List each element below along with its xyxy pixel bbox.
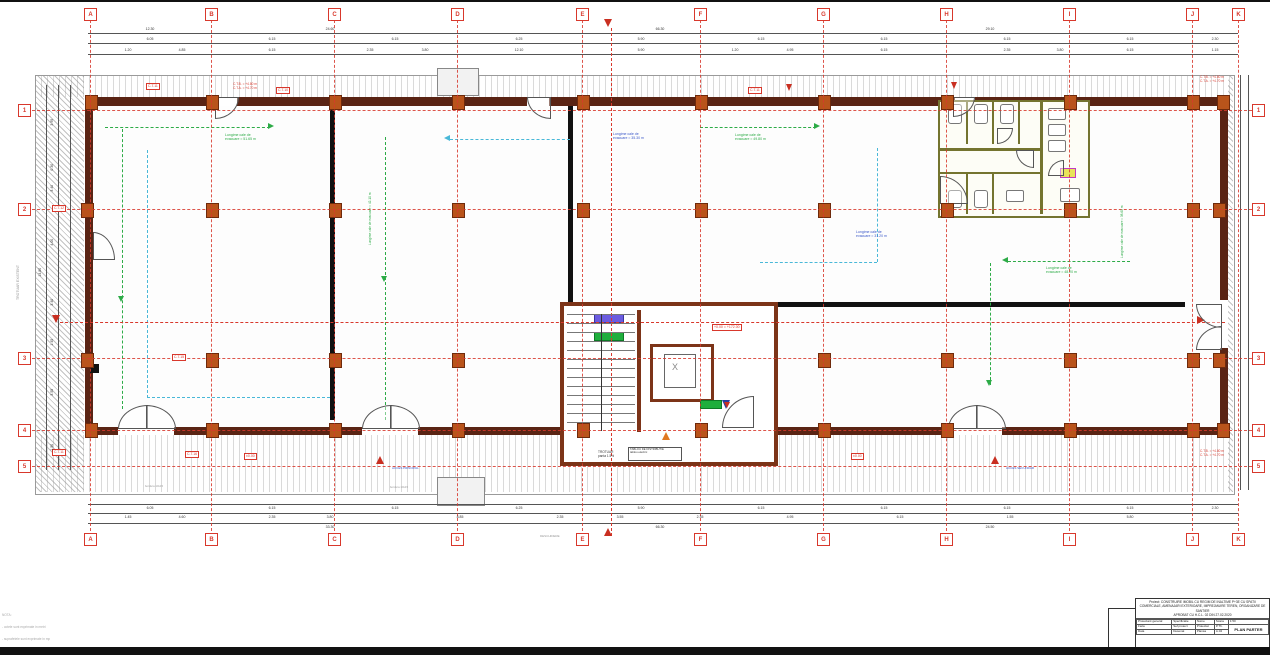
- grid-marker: 3: [18, 352, 31, 365]
- grid-marker: K: [1232, 8, 1245, 21]
- escape-route-label: Lungime cale de evacuare ≈ 31.20 m: [856, 230, 887, 239]
- dimension-text: 6.15: [1004, 506, 1011, 510]
- dimension-text: 66.30: [656, 27, 665, 31]
- data-label: Data: [1137, 630, 1172, 635]
- dimension-text: 4.00: [50, 239, 54, 246]
- grid-marker: 3: [1252, 352, 1265, 365]
- partition-black-e: [568, 106, 573, 306]
- red-box-label: ±0.00: [244, 453, 257, 460]
- column: [329, 95, 342, 110]
- dimension-text: 5.90: [638, 37, 645, 41]
- grid-marker: K: [1232, 533, 1245, 546]
- escape-route-green: [990, 263, 991, 385]
- dimension-text: 1.55: [1007, 515, 1014, 519]
- column: [577, 95, 590, 110]
- elevation-label: +0.00 = +172.00: [712, 324, 742, 331]
- grid-marker: E: [576, 8, 589, 21]
- dimension-text: 6.15: [881, 506, 888, 510]
- column: [1064, 353, 1077, 368]
- escape-route-label: Lungime cale de evacuare ≈ 38.60 m: [1120, 206, 1124, 258]
- access-label: ACCES PRINCIPAL: [392, 467, 419, 471]
- grid-column-line: [946, 20, 947, 536]
- dimension-text: 3.80: [1057, 48, 1064, 52]
- grid-marker: I: [1063, 8, 1076, 21]
- dim-line-right: [1240, 75, 1241, 490]
- escape-route-label: Lungime cale de evacuare ≈ 48.20 m: [1046, 266, 1077, 275]
- entrance-marker: [951, 82, 957, 89]
- sink-fixture: [1048, 124, 1066, 136]
- dim-line-bottom: [88, 513, 1238, 514]
- wall-top-seg: [85, 97, 215, 106]
- grid-marker: B: [205, 8, 218, 21]
- escape-route-cyan: [760, 262, 877, 263]
- dimension-text: 29.10: [986, 27, 995, 31]
- grid-column-line: [1069, 20, 1070, 536]
- column: [818, 203, 831, 218]
- grid-marker: 5: [1252, 460, 1265, 473]
- floor-plan-canvas: ±0.00 = +172.00 SPATIU COMERCIAL S = 496…: [0, 0, 1270, 655]
- grid-marker: F: [694, 533, 707, 546]
- dimension-text: 2.35: [697, 515, 704, 519]
- escape-route-green: [700, 127, 816, 128]
- red-box-label: C.T.15: [172, 354, 186, 361]
- dimension-text: 12.10: [515, 48, 524, 52]
- dimension-text: 4.95: [787, 515, 794, 519]
- grid-marker: H: [940, 8, 953, 21]
- dimension-text: 6.15: [1127, 37, 1134, 41]
- dimension-text: 6.15: [1127, 506, 1134, 510]
- grid-marker: B: [205, 533, 218, 546]
- dimension-text: 2.35: [557, 515, 564, 519]
- grid-marker: E: [576, 533, 589, 546]
- grid-column-line: [334, 20, 335, 536]
- exit-sign-green: [700, 400, 722, 409]
- notes: NOTA: - cotele sunt exprimate in metri -…: [2, 605, 50, 649]
- grid-row-line: [32, 466, 1252, 467]
- grid-marker: H: [940, 533, 953, 546]
- dimension-text: 24.50: [986, 525, 995, 529]
- red-box-label: C.T.12: [52, 205, 66, 212]
- dimension-text: 3.55: [617, 515, 624, 519]
- wall-west: [85, 97, 93, 434]
- dimension-text: 66.30: [656, 525, 665, 529]
- dimension-text: 5.80: [1127, 515, 1134, 519]
- bottom-protrusion-box: [437, 477, 485, 506]
- grid-marker: 1: [1252, 104, 1265, 117]
- dimension-text: 6.15: [881, 37, 888, 41]
- escape-route-label: Lungime cale de evacuare ≈ 42.10 m: [368, 193, 372, 245]
- dimension-text: 6.15: [392, 37, 399, 41]
- column: [941, 95, 954, 110]
- toilet-stall-divider: [992, 100, 994, 144]
- column: [452, 203, 465, 218]
- grid-marker: J: [1186, 8, 1199, 21]
- route-arrow-green: [268, 123, 274, 129]
- grid-marker: 4: [1252, 424, 1265, 437]
- column: [452, 353, 465, 368]
- grid-marker: 2: [1252, 203, 1265, 216]
- column: [206, 203, 219, 218]
- red-box-label: ±0.00: [851, 453, 864, 460]
- dimension-text: 4.95: [787, 48, 794, 52]
- dimension-text: 6.15: [269, 37, 276, 41]
- elevator-x-mark: X: [672, 362, 678, 373]
- project-title-line3: APROBAT CU H.C.L. 02 DIN 27.02.2020: [1137, 613, 1268, 617]
- column: [1187, 353, 1200, 368]
- column: [1187, 203, 1200, 218]
- red-box-label: C.T.11: [748, 87, 762, 94]
- trotuar-label: TROTUAR panta 1.5%: [598, 450, 614, 458]
- dimension-text: 2.35: [367, 48, 374, 52]
- column: [1217, 95, 1230, 110]
- screen-top-edge: [0, 0, 1270, 2]
- wc-fixture: [974, 190, 988, 208]
- entrance-marker: [991, 456, 999, 464]
- section-line: [611, 28, 612, 536]
- dimension-text: 3.80: [327, 515, 334, 519]
- dimension-text: 1.45: [125, 515, 132, 519]
- escape-route-label: Lungime cale de evacuare ≈ 35.30 m: [613, 132, 644, 141]
- title-block: Proiect: CONSTRUIRE IMOBIL CU REGIM DE I…: [1135, 598, 1270, 649]
- exit-sign-green: [594, 332, 624, 341]
- elevator-car: [664, 354, 696, 388]
- dimension-text: 24.60: [326, 27, 335, 31]
- escape-route-cyan: [147, 150, 148, 398]
- wall-east-seg: [1220, 97, 1228, 300]
- column: [1187, 95, 1200, 110]
- dimension-text: 6.15: [758, 506, 765, 510]
- secondary-grid-line: [60, 322, 1225, 323]
- dim-line-right: [1248, 75, 1249, 490]
- wc-fixture: [974, 104, 988, 124]
- dimension-text: 2.35: [1004, 48, 1011, 52]
- grid-marker: G: [817, 533, 830, 546]
- level-text: C.T.B. = +4.80 m C.T.A. = +4.70 m: [1200, 75, 1224, 83]
- column: [81, 353, 94, 368]
- dim-line-left: [58, 85, 59, 470]
- escape-route-green: [122, 129, 123, 409]
- dim-line-left: [70, 85, 71, 470]
- grid-row-line: [32, 358, 1252, 359]
- grid-column-line: [1192, 20, 1193, 536]
- grid-column-line: [211, 20, 212, 536]
- grid-marker: I: [1063, 533, 1076, 546]
- note-line: NOTA:: [2, 613, 50, 617]
- grid-column-line: [1238, 20, 1239, 536]
- dim-line-top: [88, 43, 1238, 44]
- red-box-label: C.T.16: [185, 451, 199, 458]
- dimension-text: 1.20: [732, 48, 739, 52]
- dim-line-left: [46, 85, 47, 470]
- dimension-text: 6.15: [758, 37, 765, 41]
- grid-row-line: [32, 209, 1252, 210]
- column: [81, 203, 94, 218]
- escape-route-green: [105, 127, 270, 128]
- dimension-text: 4.60: [179, 515, 186, 519]
- entrance-marker: [376, 456, 384, 464]
- section-marker: [604, 528, 612, 536]
- column: [941, 203, 954, 218]
- dimension-text: 2.30: [1212, 37, 1219, 41]
- grid-column-line: [700, 20, 701, 536]
- note-line: - cotele sunt exprimate in metri: [2, 625, 50, 629]
- route-arrow-green: [118, 296, 124, 302]
- column: [1213, 203, 1226, 218]
- column: [329, 203, 342, 218]
- grid-marker: J: [1186, 533, 1199, 546]
- red-box-label: C.T.11: [146, 83, 160, 90]
- grid-column-line: [90, 20, 91, 536]
- title-block-spacer: [1108, 608, 1136, 649]
- dimension-text: 6.15: [1004, 37, 1011, 41]
- column: [941, 353, 954, 368]
- column: [452, 95, 465, 110]
- screen-bottom-bar: [0, 647, 1270, 655]
- grid-column-line: [457, 20, 458, 536]
- dimension-text: 6.15: [1127, 48, 1134, 52]
- escape-route-label: Lungime cale de evacuare ≈ 51.65 m: [225, 133, 256, 142]
- trotuar-existent-label: TROTUAR EXISTENT: [16, 265, 20, 300]
- route-arrow-green: [986, 380, 992, 386]
- route-arrow-green: [814, 123, 820, 129]
- column: [206, 95, 219, 110]
- grid-marker: C: [328, 533, 341, 546]
- dimension-text: 5.90: [638, 48, 645, 52]
- note-line: - suprafetele sunt exprimate in mp: [2, 637, 50, 641]
- dimension-text: 6.15: [392, 506, 399, 510]
- dimension-text: 6.25: [516, 37, 523, 41]
- wall-top-seg: [237, 97, 527, 106]
- dim-line-top: [88, 54, 1238, 55]
- dimension-text: 1.45: [50, 339, 54, 346]
- column: [695, 95, 708, 110]
- top-protrusion-box: [437, 68, 479, 96]
- grid-marker: 1: [18, 104, 31, 117]
- grid-marker: C: [328, 8, 341, 21]
- column: [1213, 353, 1226, 368]
- dimension-text: 5.90: [638, 506, 645, 510]
- stair-divider: [601, 314, 602, 431]
- dimension-text: 6.25: [516, 506, 523, 510]
- toilet-stall-divider: [1018, 100, 1020, 144]
- grid-marker: D: [451, 533, 464, 546]
- dimension-text: 2.35: [269, 515, 276, 519]
- dimension-text: 3.40: [50, 299, 54, 306]
- toilet-stall-divider: [992, 174, 994, 214]
- escape-route-cyan: [877, 148, 878, 262]
- grid-marker: A: [84, 533, 97, 546]
- section-marker: [604, 19, 612, 27]
- project-title-line2: COMERCIALE, AMENAJARI EXTERIOARE, IMPREJ…: [1137, 604, 1268, 613]
- column: [206, 353, 219, 368]
- column: [329, 353, 342, 368]
- deschidere-label: DESCHIDERE: [540, 535, 560, 539]
- plansa-value: A.04: [1214, 630, 1228, 635]
- bordura-label: bordura 10x15: [390, 486, 408, 489]
- level-text: C.T.B. = +4.80 m C.T.A. = +4.70 m: [1200, 449, 1224, 457]
- stair-inner-wall: [637, 310, 641, 432]
- escape-route-label: Lungime cale de evacuare ≈ 49.80 m: [735, 133, 766, 142]
- sink-fixture: [1048, 140, 1066, 152]
- bordura-label: bordura 10x15: [145, 485, 163, 488]
- dimension-text: 3.55: [50, 389, 54, 396]
- dimension-text: 4.85: [179, 48, 186, 52]
- section-marker: [52, 315, 60, 323]
- escape-route-cyan: [450, 139, 570, 140]
- escape-route-cyan: [147, 397, 330, 398]
- grid-marker: 2: [18, 203, 31, 216]
- dimension-text: 12.30: [146, 27, 155, 31]
- column: [577, 203, 590, 218]
- dim-line-top: [88, 33, 1238, 34]
- route-arrow-green: [1002, 257, 1008, 263]
- column: [695, 203, 708, 218]
- column: [85, 95, 98, 110]
- dimension-text: 3.95: [50, 119, 54, 126]
- wall-top-seg: [549, 97, 955, 106]
- dimension-text: 3.80: [422, 48, 429, 52]
- dim-line-bottom: [88, 504, 1238, 505]
- route-arrow-green: [381, 276, 387, 282]
- grid-marker: D: [451, 8, 464, 21]
- dimension-text: 33.30: [326, 525, 335, 529]
- dimension-text: 0.30: [50, 164, 54, 171]
- column: [818, 353, 831, 368]
- toilet-partition: [938, 172, 1042, 174]
- dimension-text: 1.20: [125, 48, 132, 52]
- entrance-marker: [786, 84, 792, 91]
- grid-marker: G: [817, 8, 830, 21]
- grid-marker: F: [694, 8, 707, 21]
- red-box-label: C.T.10: [276, 87, 290, 94]
- dimension-text: 2.30: [1212, 506, 1219, 510]
- column: [1064, 95, 1077, 110]
- dimension-text: 6.15: [897, 515, 904, 519]
- level-text: C.T.B. = +4.80 m C.T.A. = +4.70 m: [233, 82, 257, 90]
- toilet-partition: [1040, 100, 1043, 214]
- dimension-text: 6.05: [147, 506, 154, 510]
- grid-marker: 5: [18, 460, 31, 473]
- dimension-text: 6.15: [269, 48, 276, 52]
- access-label: ACCES SECUNDAR: [1006, 467, 1034, 471]
- dimension-text: 1.15: [1212, 48, 1219, 52]
- row-desenat: Desenat: [1172, 630, 1196, 635]
- top-strip-hatch: [36, 76, 1232, 97]
- grid-column-line: [582, 20, 583, 536]
- plansa-label: Plansa: [1195, 630, 1214, 635]
- grid-marker: 4: [18, 424, 31, 437]
- dimension-text: 6.15: [269, 506, 276, 510]
- dimension-text: 8.85: [457, 515, 464, 519]
- wc-fixture: [1000, 104, 1014, 124]
- dimension-text: 6.05: [147, 37, 154, 41]
- dimension-text: 6.15: [881, 48, 888, 52]
- route-arrow-cyan: [444, 135, 450, 141]
- dimension-text: 1.50: [50, 444, 54, 451]
- column: [818, 95, 831, 110]
- sheet-title: PLAN PARTER: [1228, 625, 1268, 635]
- tablou-label: TABLOU DE DISTRIBUTIE tablou electric: [630, 448, 664, 455]
- grid-marker: A: [84, 8, 97, 21]
- dimension-text: 14.80: [38, 268, 42, 277]
- stair-direction-marker: [662, 432, 670, 440]
- dimension-text: 3.40: [50, 185, 54, 192]
- sink-fixture: [1060, 188, 1080, 202]
- column: [1064, 203, 1077, 218]
- sink-fixture: [1006, 190, 1024, 202]
- grid-row-line: [32, 110, 1252, 111]
- grid-column-line: [823, 20, 824, 536]
- grid-row-line: [32, 430, 1252, 431]
